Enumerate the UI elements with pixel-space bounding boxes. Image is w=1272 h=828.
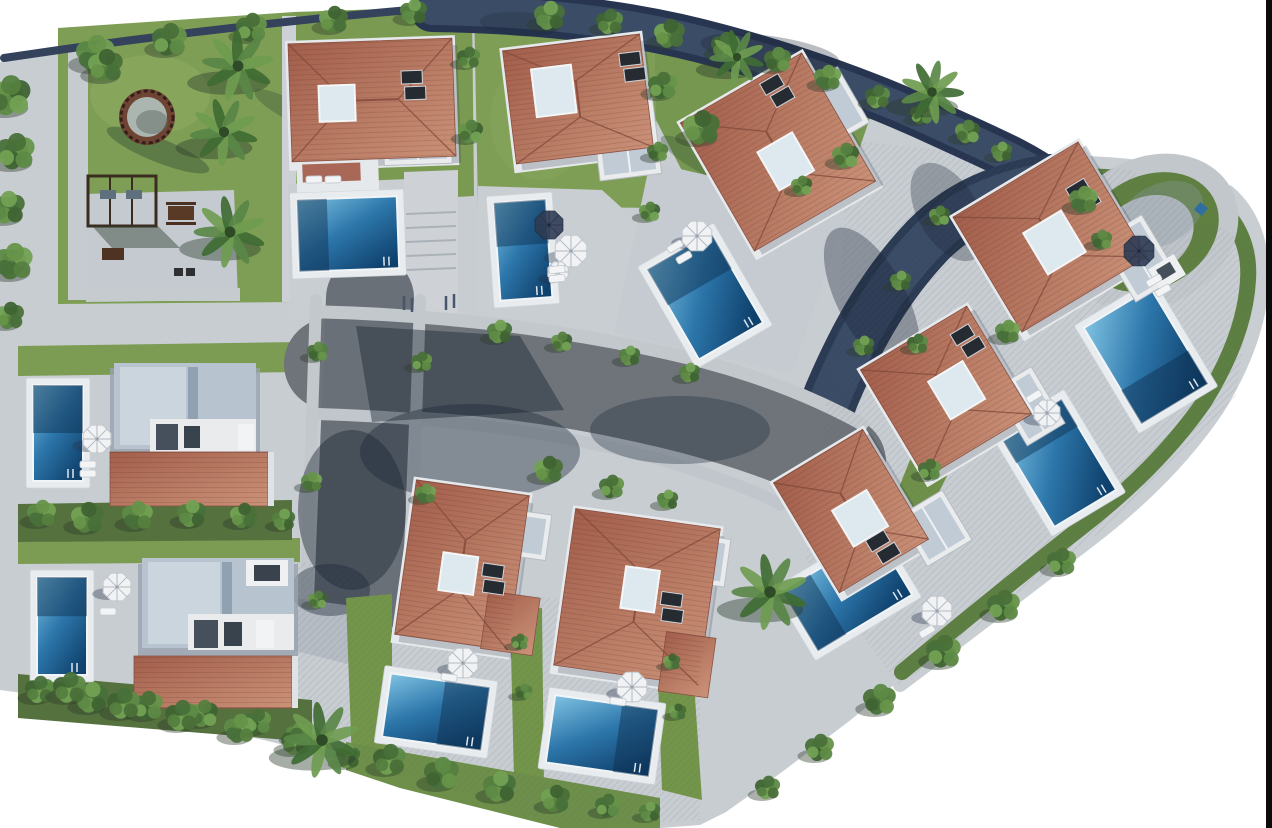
foliage <box>880 699 894 713</box>
foliage <box>426 494 435 503</box>
foliage <box>495 320 507 332</box>
parasol-pole <box>461 661 464 664</box>
villa-m1-door <box>238 424 254 450</box>
foliage <box>284 520 294 530</box>
foliage <box>520 683 528 691</box>
palm-crown <box>733 53 741 61</box>
solar-panel <box>482 563 505 579</box>
site-plan-svg <box>0 0 1272 828</box>
pool-villa-a <box>290 189 407 279</box>
foliage <box>621 355 629 363</box>
foliage <box>163 23 179 39</box>
sun-lounger <box>306 176 322 184</box>
foliage <box>8 207 23 222</box>
foliage <box>873 684 888 699</box>
circular-feature-shadow <box>136 110 168 134</box>
foliage <box>920 469 929 478</box>
foliage <box>85 682 100 697</box>
villa-m2-roof-grill <box>254 565 280 581</box>
foliage <box>390 759 404 773</box>
foliage <box>930 470 940 480</box>
foliage <box>1003 320 1015 332</box>
foliage <box>244 515 256 527</box>
foliage <box>663 85 676 98</box>
foliage <box>318 600 326 608</box>
foliage <box>1 75 21 95</box>
foliage <box>36 500 50 514</box>
foliage <box>603 794 615 806</box>
foliage <box>957 131 967 141</box>
foliage <box>646 202 656 212</box>
foliage <box>274 519 283 528</box>
pool-villa-h2 <box>538 687 666 785</box>
palm-crown <box>927 87 937 97</box>
foliage <box>88 517 102 531</box>
foliage <box>500 331 511 342</box>
foliage <box>901 281 910 290</box>
foliage <box>417 493 425 501</box>
foliage <box>998 142 1008 152</box>
foliage <box>654 142 664 152</box>
foliage <box>413 361 421 369</box>
parasol-pole <box>547 223 550 226</box>
foliage <box>489 331 499 341</box>
picnic-bench <box>166 202 196 205</box>
water-shadow <box>33 385 83 433</box>
foliage <box>192 513 205 526</box>
foliage <box>834 155 845 166</box>
foliage <box>604 9 617 22</box>
foliage <box>175 700 190 715</box>
foliage <box>918 344 927 353</box>
foliage <box>240 728 253 741</box>
foliage <box>516 691 523 698</box>
foliage <box>612 486 623 497</box>
foliage <box>375 758 388 771</box>
foliage <box>132 501 146 515</box>
foliage <box>4 302 18 316</box>
foliage <box>860 336 870 346</box>
foliage <box>198 700 212 714</box>
pergola-bench <box>100 190 116 199</box>
foliage <box>914 334 924 344</box>
foliage <box>312 482 321 491</box>
villa-m2-window <box>224 622 242 646</box>
foliage <box>936 206 946 216</box>
foliage <box>10 95 28 113</box>
skylight <box>532 66 575 116</box>
foliage <box>686 363 696 373</box>
foliage <box>778 59 790 71</box>
foliage <box>460 131 470 141</box>
villa-m2-door <box>256 620 274 648</box>
foliage <box>204 713 217 726</box>
foliage <box>70 687 84 701</box>
foliage <box>610 21 622 33</box>
foliage <box>91 64 105 78</box>
water-shadow <box>37 577 87 616</box>
waste-bin <box>186 268 195 276</box>
foliage <box>1056 548 1070 562</box>
foliage <box>798 176 808 186</box>
foliage <box>925 459 936 470</box>
foliage <box>55 686 68 699</box>
foliage <box>828 77 840 89</box>
foliage <box>864 346 873 355</box>
image-edge-artifact <box>1266 0 1272 828</box>
foliage <box>258 721 270 733</box>
foliage <box>822 65 835 78</box>
foliage <box>550 15 563 28</box>
foliage <box>246 13 260 27</box>
foliage <box>124 514 136 526</box>
foliage <box>556 798 569 811</box>
foliage <box>234 714 248 728</box>
foliage <box>597 805 607 815</box>
foliage <box>16 151 33 168</box>
foliage <box>608 805 619 816</box>
foliage <box>650 212 659 221</box>
parasol-pole <box>95 437 98 440</box>
foliage <box>10 315 23 328</box>
foliage <box>656 32 668 44</box>
foliage <box>1102 240 1111 249</box>
foliage <box>650 85 661 96</box>
foliage <box>820 747 833 760</box>
parasol-pole <box>1137 249 1140 252</box>
foliage <box>668 500 677 509</box>
pool-villa-m2 <box>30 570 94 682</box>
foliage <box>892 280 900 288</box>
foliage <box>664 19 678 33</box>
foliage <box>182 715 196 729</box>
foliage <box>124 703 138 717</box>
foliage <box>802 186 811 195</box>
foliage <box>658 152 667 161</box>
foliage <box>1084 199 1097 212</box>
foliage <box>772 47 785 60</box>
foliage <box>1002 152 1011 161</box>
foliage <box>427 772 441 786</box>
foliage <box>63 672 78 687</box>
solar-panel <box>624 67 646 82</box>
foliage <box>29 513 40 524</box>
parasol-pole <box>1045 411 1048 414</box>
foliage <box>766 59 777 70</box>
foliage <box>27 689 38 700</box>
foliage <box>630 356 639 365</box>
foliage <box>690 373 699 382</box>
foliage <box>1049 561 1060 572</box>
villa-m1-window <box>184 426 200 448</box>
foliage <box>670 711 677 718</box>
foliage <box>512 641 519 648</box>
foliage <box>873 85 885 97</box>
sun-lounger <box>549 265 566 274</box>
foliage <box>940 216 949 225</box>
foliage <box>314 591 323 600</box>
foliage <box>674 703 682 711</box>
foliage <box>321 19 332 30</box>
foliage <box>167 714 180 727</box>
foliage <box>558 332 568 342</box>
sun-lounger <box>325 176 341 184</box>
skylight <box>621 567 658 611</box>
foliage <box>793 185 801 193</box>
palm-crown <box>225 227 236 238</box>
site-plan-render <box>0 0 1272 828</box>
foliage <box>6 243 24 261</box>
parasol <box>1124 236 1154 266</box>
sun-lounger <box>549 274 566 283</box>
palm-crown <box>233 61 244 72</box>
foliage <box>686 126 700 140</box>
villa-m1-railing <box>268 452 274 506</box>
foliage <box>536 14 548 26</box>
foliage <box>1071 199 1082 210</box>
foliage <box>865 698 878 711</box>
foliage <box>549 469 562 482</box>
foliage <box>435 757 451 773</box>
palm-crown <box>764 586 776 598</box>
solar-panel <box>405 86 426 100</box>
foliage <box>226 727 238 739</box>
foliage <box>909 343 917 351</box>
solar-panel <box>619 51 641 66</box>
sun-lounger <box>100 608 116 615</box>
foliage <box>464 47 475 58</box>
foliage <box>989 604 1002 617</box>
sun-lounger <box>80 470 96 477</box>
foliage <box>238 503 251 516</box>
foliage <box>694 110 711 127</box>
foliage <box>855 345 863 353</box>
foliage <box>678 712 686 720</box>
picnic-table <box>102 248 124 260</box>
foliage <box>649 151 657 159</box>
foliage <box>471 131 482 142</box>
foliage <box>659 499 667 507</box>
foliage <box>14 261 31 278</box>
foliage <box>929 650 943 664</box>
foliage <box>672 662 680 670</box>
foliage <box>968 131 979 142</box>
foliage <box>867 96 877 106</box>
villa-m2-railing <box>292 656 298 708</box>
villa-m2-window <box>194 620 218 648</box>
foliage <box>931 215 939 223</box>
foliage <box>232 515 243 526</box>
foliage <box>607 475 619 487</box>
foliage <box>816 77 827 88</box>
foliage <box>422 484 432 494</box>
foliage <box>1008 331 1019 342</box>
parasol-pole <box>695 234 698 237</box>
foliage <box>1062 561 1075 574</box>
foliage <box>117 688 132 703</box>
foliage <box>664 490 674 500</box>
picnic-bench <box>166 222 196 225</box>
foliage <box>543 798 554 809</box>
foliage <box>757 787 767 797</box>
foliage <box>1004 605 1018 619</box>
tree-shadow-on-road <box>590 396 770 464</box>
foliage <box>536 469 547 480</box>
foliage <box>81 502 96 517</box>
foliage <box>897 271 907 281</box>
foliage <box>937 635 953 651</box>
waste-bin <box>174 268 183 276</box>
foliage <box>500 786 514 800</box>
foliage <box>641 811 649 819</box>
parasol-pole <box>630 685 633 688</box>
foliage <box>155 38 169 52</box>
foliage <box>814 734 828 748</box>
foliage <box>993 151 1001 159</box>
foliage <box>252 709 265 722</box>
foliage <box>402 11 413 22</box>
villa-m1-red-roof-texture <box>110 452 268 506</box>
foliage <box>99 49 115 65</box>
foliage <box>34 676 48 690</box>
solar-panel <box>482 579 505 595</box>
foliage <box>846 155 858 167</box>
foliage <box>73 516 86 529</box>
foliage <box>626 346 636 356</box>
villa-m1-window <box>156 424 178 450</box>
foliage <box>334 19 347 32</box>
foliage <box>309 599 317 607</box>
foliage <box>1 191 17 207</box>
foliage <box>997 331 1007 341</box>
foliage <box>763 776 775 788</box>
foliage <box>186 500 200 514</box>
foliage <box>109 702 122 715</box>
foliage <box>8 133 26 151</box>
park-path <box>68 50 88 300</box>
palm-crown <box>316 734 328 746</box>
foliage <box>562 342 571 351</box>
foliage <box>485 785 498 798</box>
foliage <box>422 362 431 371</box>
foliage <box>138 515 151 528</box>
skylight <box>320 86 355 121</box>
foliage <box>179 513 190 524</box>
foliage <box>553 341 561 349</box>
skylight <box>439 553 477 593</box>
parasol-pole <box>569 249 572 252</box>
foliage <box>303 481 311 489</box>
water-shadow <box>297 199 329 272</box>
foliage <box>668 653 676 661</box>
pool-ladder <box>542 286 543 295</box>
foliage <box>418 352 428 362</box>
pool-ladder <box>537 286 538 295</box>
foliage <box>807 747 818 758</box>
parasol-pole <box>115 585 118 588</box>
foliage <box>308 472 318 482</box>
foliage <box>840 143 853 156</box>
sun-lounger <box>80 461 96 468</box>
solar-panel <box>401 70 422 84</box>
foliage <box>664 661 671 668</box>
foliage <box>543 456 557 470</box>
foliage <box>544 1 558 15</box>
foliage <box>768 787 779 798</box>
foliage <box>414 11 426 23</box>
foliage <box>148 705 161 718</box>
foliage <box>318 352 327 361</box>
picnic-table <box>168 206 194 220</box>
foliage <box>681 372 689 380</box>
foliage <box>702 127 718 143</box>
foliage <box>670 33 683 46</box>
foliage <box>601 486 611 496</box>
foliage <box>944 651 959 666</box>
pergola-bench <box>126 190 142 199</box>
foliage <box>520 642 528 650</box>
foliage <box>646 802 656 812</box>
solar-panel <box>661 608 684 624</box>
foliage <box>279 509 290 520</box>
villa-h2 <box>549 505 732 698</box>
pool-villa-b <box>486 192 560 308</box>
foliage <box>516 633 524 641</box>
park-path <box>88 288 240 301</box>
foliage <box>442 773 457 788</box>
foliage <box>106 65 121 80</box>
foliage <box>997 590 1012 605</box>
palm-crown <box>219 127 229 137</box>
foliage <box>314 342 324 352</box>
foliage <box>493 771 508 786</box>
parasol <box>535 211 564 240</box>
foliage <box>328 6 342 20</box>
foliage <box>641 211 649 219</box>
foliage <box>963 120 975 132</box>
foliage <box>657 72 671 86</box>
foliage <box>142 691 156 705</box>
foliage <box>459 57 468 66</box>
foliage <box>170 39 185 54</box>
foliage <box>598 21 609 32</box>
foliage <box>650 812 659 821</box>
foliage <box>309 351 317 359</box>
foliage <box>383 744 398 759</box>
solar-panel <box>660 591 683 607</box>
foliage <box>42 513 55 526</box>
water-shadow <box>436 681 489 751</box>
foliage <box>524 692 532 700</box>
foliage <box>469 58 479 68</box>
foliage <box>550 785 564 799</box>
parasol-pole <box>935 609 938 612</box>
foliage <box>1098 230 1108 240</box>
foliage <box>466 120 478 132</box>
foliage <box>1078 186 1092 200</box>
foliage <box>1093 239 1101 247</box>
